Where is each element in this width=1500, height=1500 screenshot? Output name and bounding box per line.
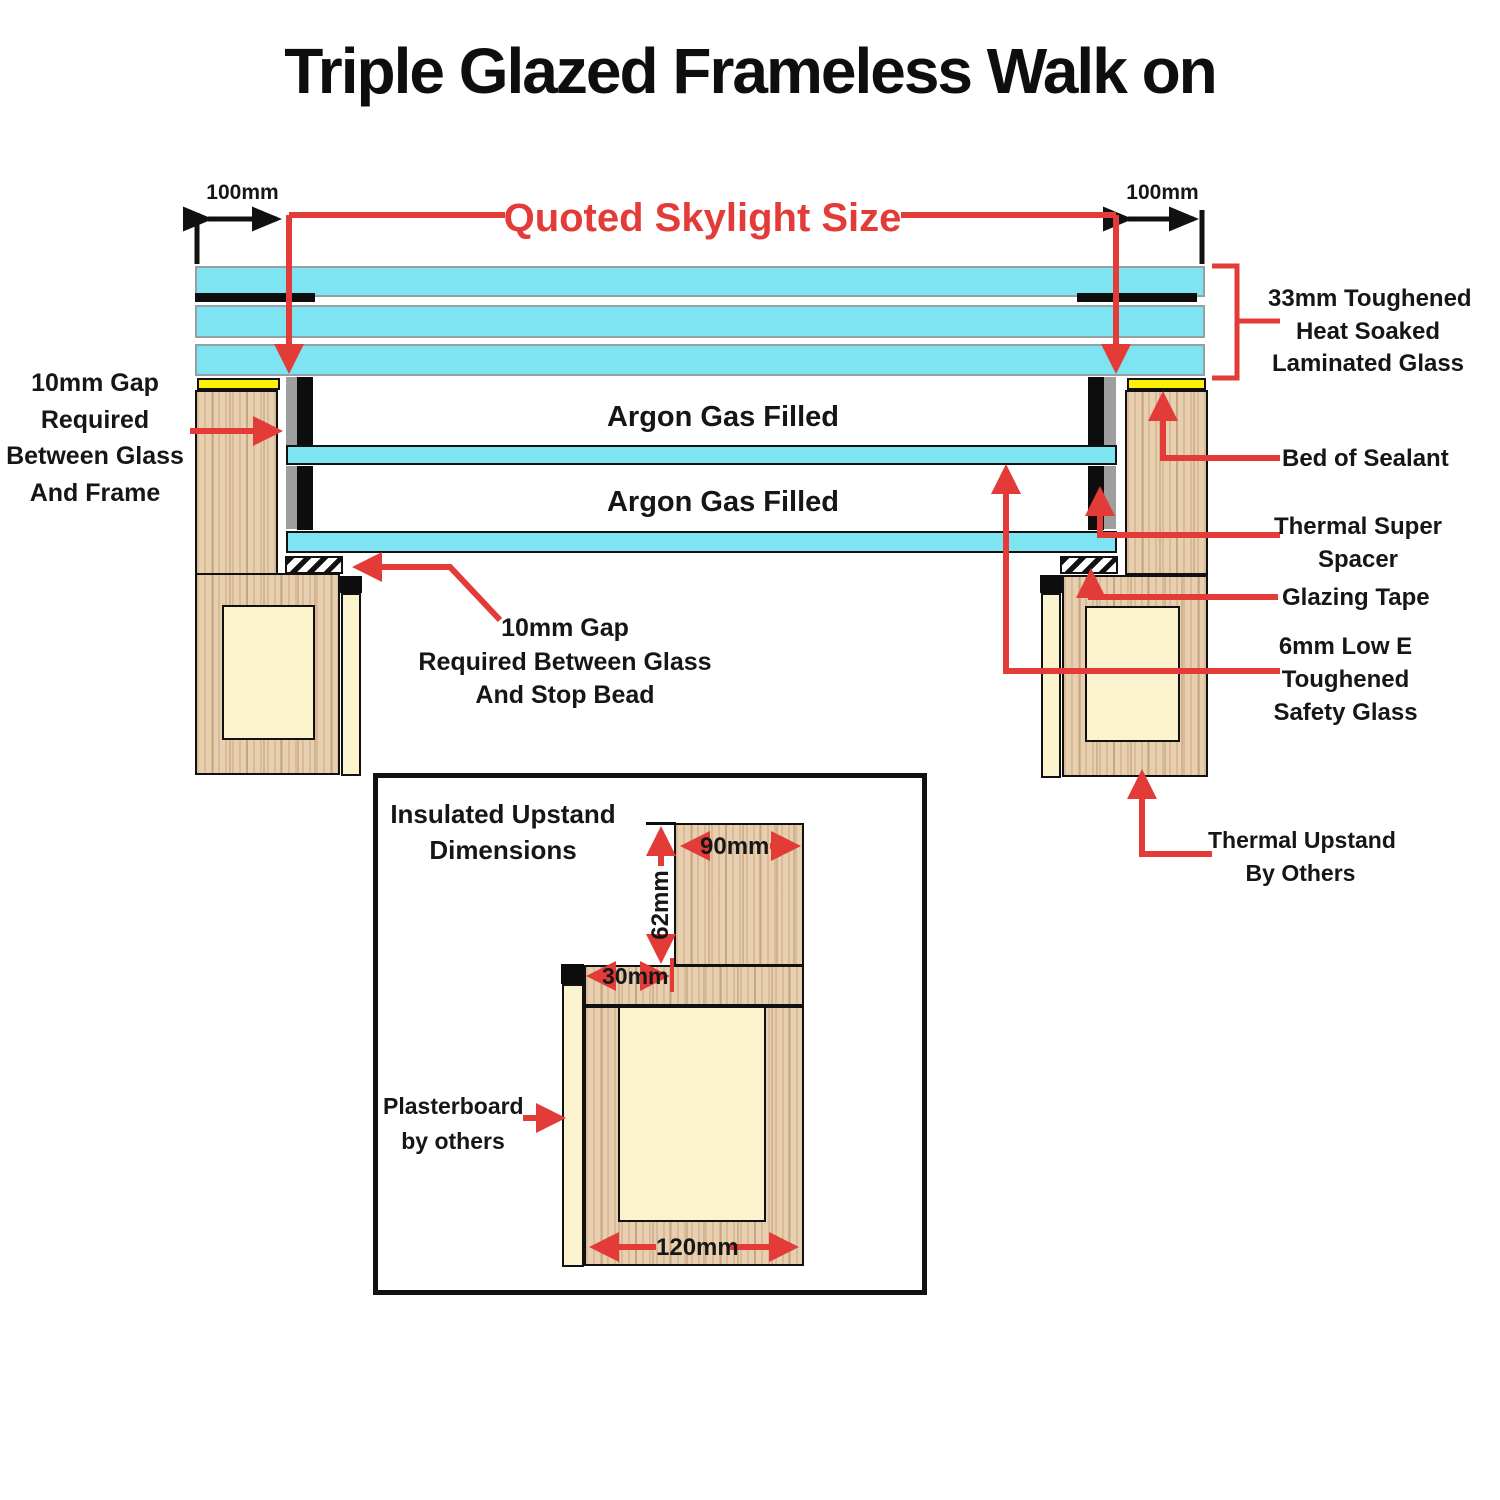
callout-thermal-spacer: Thermal Super Spacer	[1268, 510, 1448, 576]
argon-label-top: Argon Gas Filled	[473, 399, 973, 436]
dim-left-100mm: 100mm	[195, 180, 290, 207]
leader-bed-of-sealant	[1163, 397, 1280, 458]
callout-laminated-glass: 33mm Toughened Heat Soaked Laminated Gla…	[1268, 283, 1468, 381]
page-title: Triple Glazed Frameless Walk on	[0, 34, 1500, 108]
inset-title: Insulated Upstand Dimensions	[386, 796, 620, 869]
inset-dim-62mm: 62mm	[647, 870, 675, 940]
inset-dim-120mm: 120mm	[656, 1234, 739, 1262]
leader-thermal-upstand	[1142, 775, 1212, 854]
callout-glazing-tape: Glazing Tape	[1282, 583, 1492, 613]
leader-thermal-spacer	[1100, 492, 1280, 535]
callout-plasterboard: Plasterboard by others	[383, 1089, 523, 1158]
dim-right-100mm: 100mm	[1115, 180, 1210, 207]
leader-low-e-glass	[1006, 470, 1280, 671]
callout-low-e-glass: 6mm Low E Toughened Safety Glass	[1263, 630, 1428, 729]
inset-dim-30mm: 30mm	[602, 963, 668, 990]
callout-thermal-upstand: Thermal Upstand By Others	[1208, 824, 1393, 889]
skylight-section-diagram: Triple Glazed Frameless Walk on Argon Ga…	[0, 0, 1500, 1500]
callout-gap-frame: 10mm Gap Required Between Glass And Fram…	[2, 365, 188, 511]
inset-dim-90mm: 90mm	[700, 833, 769, 861]
quoted-skylight-size-label: Quoted Skylight Size	[455, 193, 950, 244]
callout-gap-stop-bead: 10mm Gap Required Between Glass And Stop…	[405, 612, 725, 713]
leader-glazing-tape	[1091, 574, 1278, 597]
callout-bed-of-sealant: Bed of Sealant	[1282, 444, 1492, 474]
argon-label-bottom: Argon Gas Filled	[473, 484, 973, 521]
